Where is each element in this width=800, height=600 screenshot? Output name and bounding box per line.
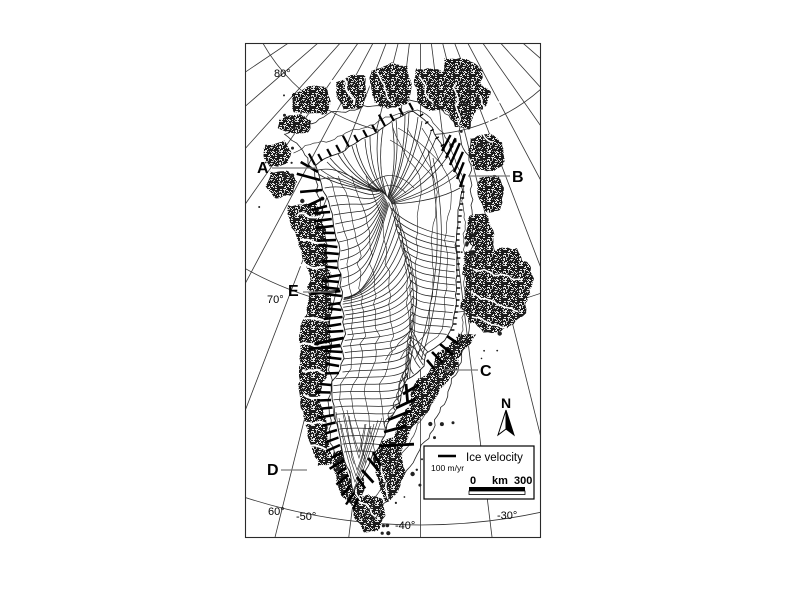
svg-text:A: A bbox=[257, 160, 269, 177]
svg-text:-40°: -40° bbox=[395, 520, 415, 532]
svg-text:B: B bbox=[512, 169, 524, 186]
svg-text:km: km bbox=[492, 475, 508, 487]
svg-text:E: E bbox=[288, 283, 299, 300]
svg-text:70°: 70° bbox=[267, 294, 284, 306]
svg-text:-50°: -50° bbox=[296, 511, 316, 523]
svg-text:C: C bbox=[480, 363, 492, 380]
svg-text:0: 0 bbox=[470, 475, 476, 487]
svg-text:-30°: -30° bbox=[497, 510, 517, 522]
svg-text:D: D bbox=[267, 462, 279, 479]
svg-text:100 m/yr: 100 m/yr bbox=[431, 463, 464, 473]
svg-text:N: N bbox=[501, 395, 511, 411]
svg-text:300: 300 bbox=[514, 475, 532, 487]
svg-text:60°: 60° bbox=[268, 506, 285, 518]
svg-text:80°: 80° bbox=[274, 68, 291, 80]
svg-text:Ice velocity: Ice velocity bbox=[466, 452, 523, 464]
